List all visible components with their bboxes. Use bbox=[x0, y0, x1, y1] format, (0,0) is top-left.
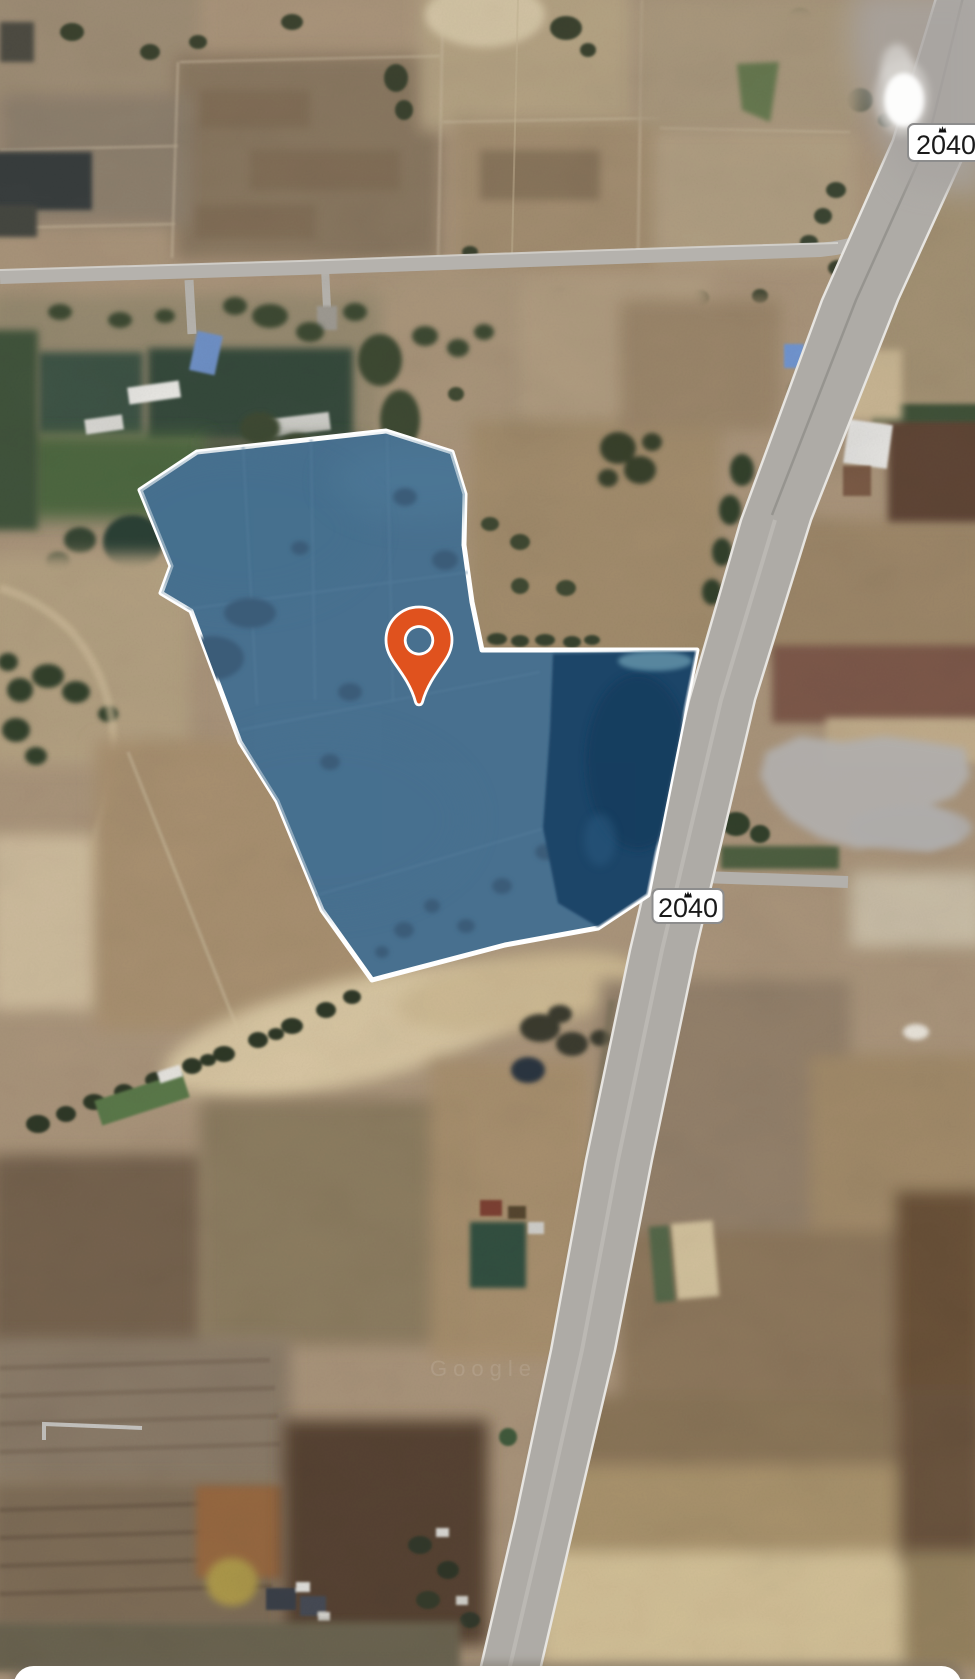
svg-text:Google: Google bbox=[430, 1356, 537, 1381]
svg-text:2040: 2040 bbox=[916, 130, 975, 160]
svg-text:2040: 2040 bbox=[658, 893, 718, 923]
